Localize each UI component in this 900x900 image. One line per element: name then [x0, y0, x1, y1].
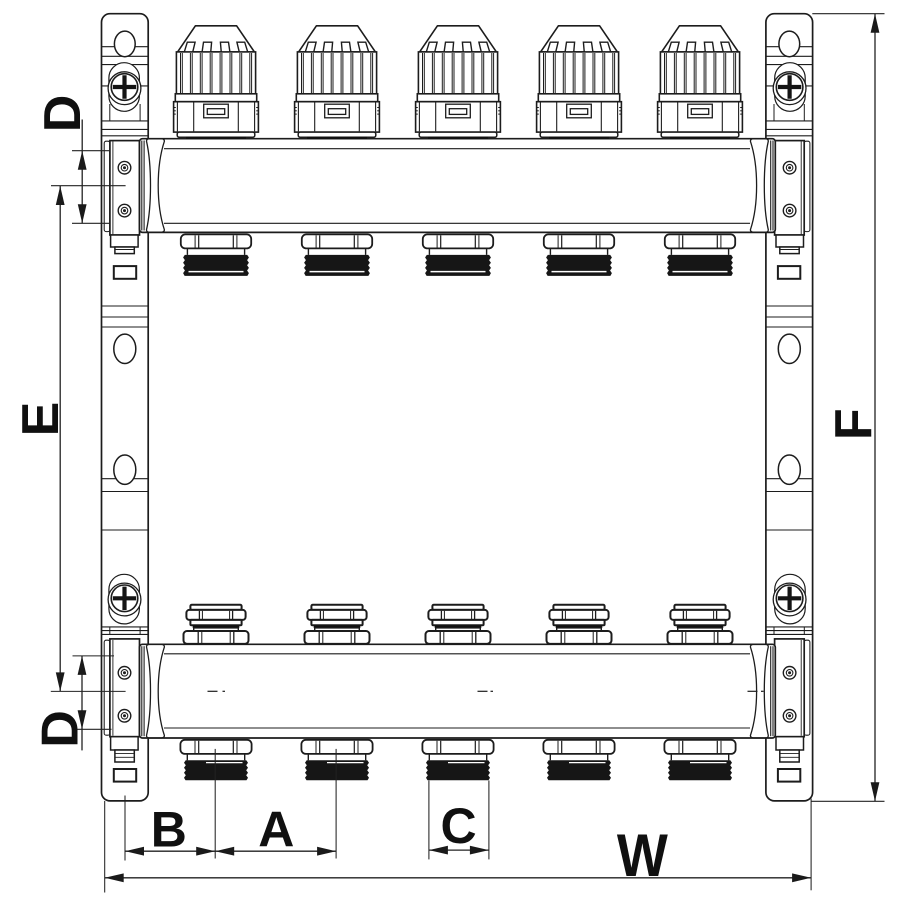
svg-text:D: D	[34, 95, 92, 133]
svg-text:D: D	[31, 710, 89, 748]
svg-text:C: C	[440, 798, 476, 854]
svg-text:F: F	[825, 408, 883, 440]
svg-text:B: B	[151, 801, 187, 857]
svg-text:W: W	[617, 823, 668, 890]
svg-text:A: A	[258, 801, 294, 857]
svg-text:E: E	[12, 402, 70, 437]
